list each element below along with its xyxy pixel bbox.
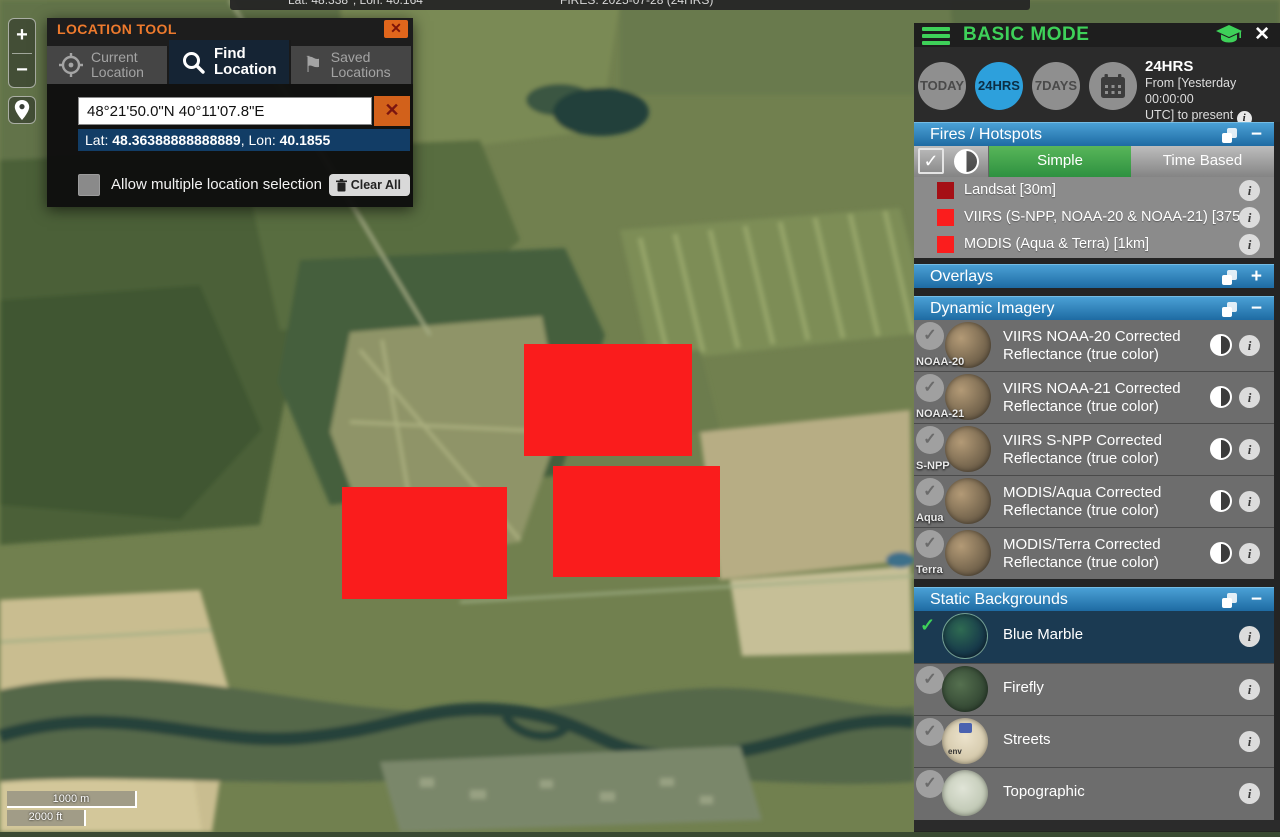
- background-row-firefly[interactable]: ✓ Firefly i: [914, 664, 1274, 715]
- legend-label: MODIS (Aqua & Terra) [1km]: [964, 236, 1149, 252]
- layer-title: VIIRS S-NPP CorrectedReflectance (true c…: [1003, 432, 1162, 468]
- zoom-control: + −: [8, 18, 36, 88]
- layer-title: MODIS/Terra CorrectedReflectance (true c…: [1003, 536, 1161, 572]
- crosshair-icon: [59, 53, 83, 77]
- time-24hrs-button[interactable]: 24HRS: [975, 62, 1023, 110]
- layers-icon[interactable]: [1222, 128, 1237, 143]
- location-tool-body: ✕ Lat: 48.36388888888889, Lon: 40.1855 A…: [47, 84, 413, 207]
- close-dialog-button[interactable]: ✕: [384, 20, 408, 38]
- fires-hotspots-section-header[interactable]: Fires / Hotspots −: [914, 122, 1274, 146]
- lon-value: 40.1855: [280, 132, 331, 148]
- info-icon[interactable]: i: [1239, 180, 1260, 201]
- streets-thumb-text: env: [948, 747, 962, 756]
- expand-section-icon[interactable]: +: [1251, 268, 1262, 286]
- overlays-section-header[interactable]: Overlays +: [914, 264, 1274, 288]
- calendar-button[interactable]: [1089, 62, 1137, 110]
- info-icon[interactable]: i: [1239, 439, 1260, 460]
- legend-row: MODIS (Aqua & Terra) [1km] i: [914, 231, 1274, 258]
- imagery-row-noaa20: ✓ NOAA-20 VIIRS NOAA-20 CorrectedReflect…: [914, 320, 1274, 371]
- simple-mode-button[interactable]: Simple: [988, 146, 1131, 177]
- tab-label: Locations: [331, 65, 391, 80]
- panel-header: BASIC MODE ✕: [914, 23, 1280, 47]
- tab-label: Find: [214, 46, 277, 62]
- lon-label: Lon:: [249, 132, 280, 148]
- legend-label: VIIRS (S-NPP, NOAA-20 & NOAA-21) [375m]: [964, 209, 1256, 225]
- time-today-button[interactable]: TODAY: [918, 62, 966, 110]
- layer-checkbox[interactable]: ✓: [916, 478, 944, 506]
- background-thumbnail[interactable]: [942, 613, 988, 659]
- fire-detection-footprint[interactable]: [524, 344, 692, 456]
- location-tool-tabs: Current Location Find Location ⚑ Saved L…: [47, 40, 413, 84]
- viirs-color-swatch: [937, 209, 954, 226]
- streets-shield-mark: [959, 723, 972, 733]
- fires-contrast-icon[interactable]: [954, 149, 979, 174]
- background-title: Blue Marble: [1003, 626, 1083, 643]
- tab-find-location[interactable]: Find Location: [169, 40, 291, 84]
- dialog-title: LOCATION TOOL: [57, 21, 177, 37]
- clear-search-button[interactable]: ✕: [374, 96, 410, 126]
- background-title: Firefly: [1003, 679, 1044, 696]
- lat-value: 48.36388888888889: [112, 132, 240, 148]
- fires-toggle-row: ✓ Simple Time Based: [914, 146, 1274, 177]
- layer-contrast-icon[interactable]: [1210, 438, 1232, 460]
- legend-label: Landsat [30m]: [964, 182, 1056, 198]
- section-title: Overlays: [930, 268, 993, 285]
- fire-detection-footprint[interactable]: [553, 466, 720, 577]
- imagery-row-snpp: ✓ S-NPP VIIRS S-NPP CorrectedReflectance…: [914, 424, 1274, 475]
- satellite-badge: Aqua: [916, 512, 944, 524]
- layer-title: MODIS/Aqua CorrectedReflectance (true co…: [1003, 484, 1161, 520]
- layer-thumbnail[interactable]: [945, 426, 991, 472]
- satellite-badge: NOAA-21: [916, 408, 964, 420]
- basic-mode-panel: BASIC MODE ✕ TODAY 24HRS 7DAYS 24HRS Fro: [914, 23, 1280, 832]
- panel-title: BASIC MODE: [963, 24, 1089, 46]
- time-based-mode-button[interactable]: Time Based: [1131, 146, 1274, 177]
- satellite-badge: S-NPP: [916, 460, 950, 472]
- info-icon[interactable]: i: [1239, 335, 1260, 356]
- allow-multiple-checkbox[interactable]: [78, 174, 100, 196]
- layer-checkbox[interactable]: ✓: [916, 530, 944, 558]
- time-range-line1: From [Yesterday 00:00:00: [1145, 75, 1277, 107]
- info-icon[interactable]: i: [1239, 731, 1260, 752]
- background-title: Topographic: [1003, 783, 1085, 800]
- latlon-result-bar: Lat: 48.36388888888889, Lon: 40.1855: [78, 129, 410, 151]
- map-pin-icon: [14, 100, 30, 120]
- info-icon[interactable]: i: [1239, 207, 1260, 228]
- time-7days-button[interactable]: 7DAYS: [1032, 62, 1080, 110]
- layer-contrast-icon[interactable]: [1210, 386, 1232, 408]
- layer-checkbox[interactable]: ✓: [916, 426, 944, 454]
- time-range-line2: UTC] to present: [1145, 108, 1237, 122]
- location-tool-dialog: LOCATION TOOL ✕ Current Location Find Lo…: [47, 18, 413, 207]
- section-title: Static Backgrounds: [930, 591, 1068, 608]
- calendar-icon: [1100, 74, 1126, 98]
- location-marker-button[interactable]: [8, 96, 36, 124]
- satellite-badge: Terra: [916, 564, 943, 576]
- trash-icon: [336, 179, 347, 192]
- allow-multiple-label: Allow multiple location selection: [111, 176, 322, 193]
- scale-bar-imperial: 2000 ft: [7, 810, 86, 826]
- lat-label: Lat:: [85, 132, 112, 148]
- legend-row: Landsat [30m] i: [914, 177, 1274, 204]
- info-icon[interactable]: i: [1239, 491, 1260, 512]
- close-panel-button[interactable]: ✕: [1254, 23, 1270, 46]
- legend-row: VIIRS (S-NPP, NOAA-20 & NOAA-21) [375m] …: [914, 204, 1274, 231]
- time-range-summary: 24HRS From [Yesterday 00:00:00 UTC] to p…: [1145, 59, 1277, 126]
- flag-icon: ⚑: [303, 54, 323, 76]
- fire-detection-footprint[interactable]: [342, 487, 507, 599]
- tab-current-location[interactable]: Current Location: [47, 46, 169, 84]
- layer-contrast-icon[interactable]: [1210, 490, 1232, 512]
- menu-icon[interactable]: [922, 27, 950, 48]
- clear-all-button[interactable]: Clear All: [329, 174, 410, 196]
- dynamic-imagery-section-header[interactable]: Dynamic Imagery −: [914, 296, 1274, 320]
- tab-label: Saved: [331, 50, 391, 65]
- background-row-streets[interactable]: ✓ env Streets i: [914, 716, 1274, 767]
- panel-bottom-strip: [914, 820, 1280, 831]
- layers-icon[interactable]: [1222, 593, 1237, 608]
- selected-check-icon: ✓: [920, 615, 935, 636]
- info-icon[interactable]: i: [1239, 626, 1260, 647]
- coordinate-search-input[interactable]: [78, 97, 372, 125]
- fires-legend: Landsat [30m] i VIIRS (S-NPP, NOAA-20 & …: [914, 177, 1274, 258]
- background-row-blue-marble[interactable]: ✓ Blue Marble i: [914, 611, 1274, 663]
- layer-thumbnail[interactable]: [945, 530, 991, 576]
- layer-contrast-icon[interactable]: [1210, 334, 1232, 356]
- fires-date-label: FIRES: 2025-07-28 (24HRS): [560, 0, 713, 7]
- layers-icon[interactable]: [1222, 270, 1237, 285]
- background-checkbox[interactable]: ✓: [916, 718, 944, 746]
- static-backgrounds-section-header[interactable]: Static Backgrounds −: [914, 587, 1274, 611]
- time-range-title: 24HRS: [1145, 59, 1277, 75]
- collapse-section-icon[interactable]: −: [1251, 591, 1262, 609]
- tab-saved-locations[interactable]: ⚑ Saved Locations: [291, 46, 411, 84]
- layer-contrast-icon[interactable]: [1210, 542, 1232, 564]
- section-title: Dynamic Imagery: [930, 300, 1054, 317]
- imagery-row-aqua: ✓ Aqua MODIS/Aqua CorrectedReflectance (…: [914, 476, 1274, 527]
- background-thumbnail[interactable]: [942, 770, 988, 816]
- layer-thumbnail[interactable]: [945, 478, 991, 524]
- background-thumbnail[interactable]: env: [942, 718, 988, 764]
- layer-checkbox[interactable]: ✓: [916, 374, 944, 402]
- background-title: Streets: [1003, 731, 1051, 748]
- collapse-section-icon[interactable]: −: [1251, 300, 1262, 318]
- fires-visibility-checkbox[interactable]: ✓: [918, 148, 944, 174]
- modis-color-swatch: [937, 236, 954, 253]
- info-icon[interactable]: i: [1239, 387, 1260, 408]
- zoom-in-button[interactable]: +: [9, 19, 35, 53]
- cursor-coordinates: Lat: 48.338°, Lon: 40.164°: [288, 0, 428, 7]
- background-row-topographic[interactable]: ✓ Topographic i: [914, 768, 1274, 820]
- background-checkbox[interactable]: ✓: [916, 666, 944, 694]
- info-icon[interactable]: i: [1239, 679, 1260, 700]
- satellite-badge: NOAA-20: [916, 356, 964, 368]
- multi-location-row: Allow multiple location selection Clear …: [78, 174, 410, 198]
- zoom-out-button[interactable]: −: [9, 54, 35, 88]
- info-icon[interactable]: i: [1239, 234, 1260, 255]
- tab-label: Current: [91, 50, 144, 65]
- section-title: Fires / Hotspots: [930, 126, 1042, 143]
- background-checkbox[interactable]: ✓: [916, 770, 944, 798]
- info-icon[interactable]: i: [1239, 783, 1260, 804]
- layers-icon[interactable]: [1222, 302, 1237, 317]
- imagery-row-noaa21: ✓ NOAA-21 VIIRS NOAA-21 CorrectedReflect…: [914, 372, 1274, 423]
- landsat-color-swatch: [937, 182, 954, 199]
- imagery-row-terra: ✓ Terra MODIS/Terra CorrectedReflectance…: [914, 528, 1274, 579]
- collapse-section-icon[interactable]: −: [1251, 126, 1262, 144]
- background-thumbnail[interactable]: [942, 666, 988, 712]
- search-icon: [181, 50, 206, 75]
- scale-bar-metric: 1000 m: [7, 791, 137, 808]
- layer-title: VIIRS NOAA-21 CorrectedReflectance (true…: [1003, 380, 1181, 416]
- tab-label: Location: [214, 62, 277, 78]
- info-icon[interactable]: i: [1239, 543, 1260, 564]
- top-status-bar: Lat: 48.338°, Lon: 40.164° FIRES: 2025-0…: [230, 0, 1030, 10]
- clear-all-label: Clear All: [351, 174, 401, 196]
- time-range-row: TODAY 24HRS 7DAYS 24HRS From [Yesterday …: [914, 47, 1280, 122]
- location-tool-header: LOCATION TOOL ✕: [47, 18, 413, 40]
- tutorial-graduation-cap-icon[interactable]: [1216, 25, 1242, 49]
- layer-title: VIIRS NOAA-20 CorrectedReflectance (true…: [1003, 328, 1181, 364]
- layer-checkbox[interactable]: ✓: [916, 322, 944, 350]
- tab-label: Location: [91, 65, 144, 80]
